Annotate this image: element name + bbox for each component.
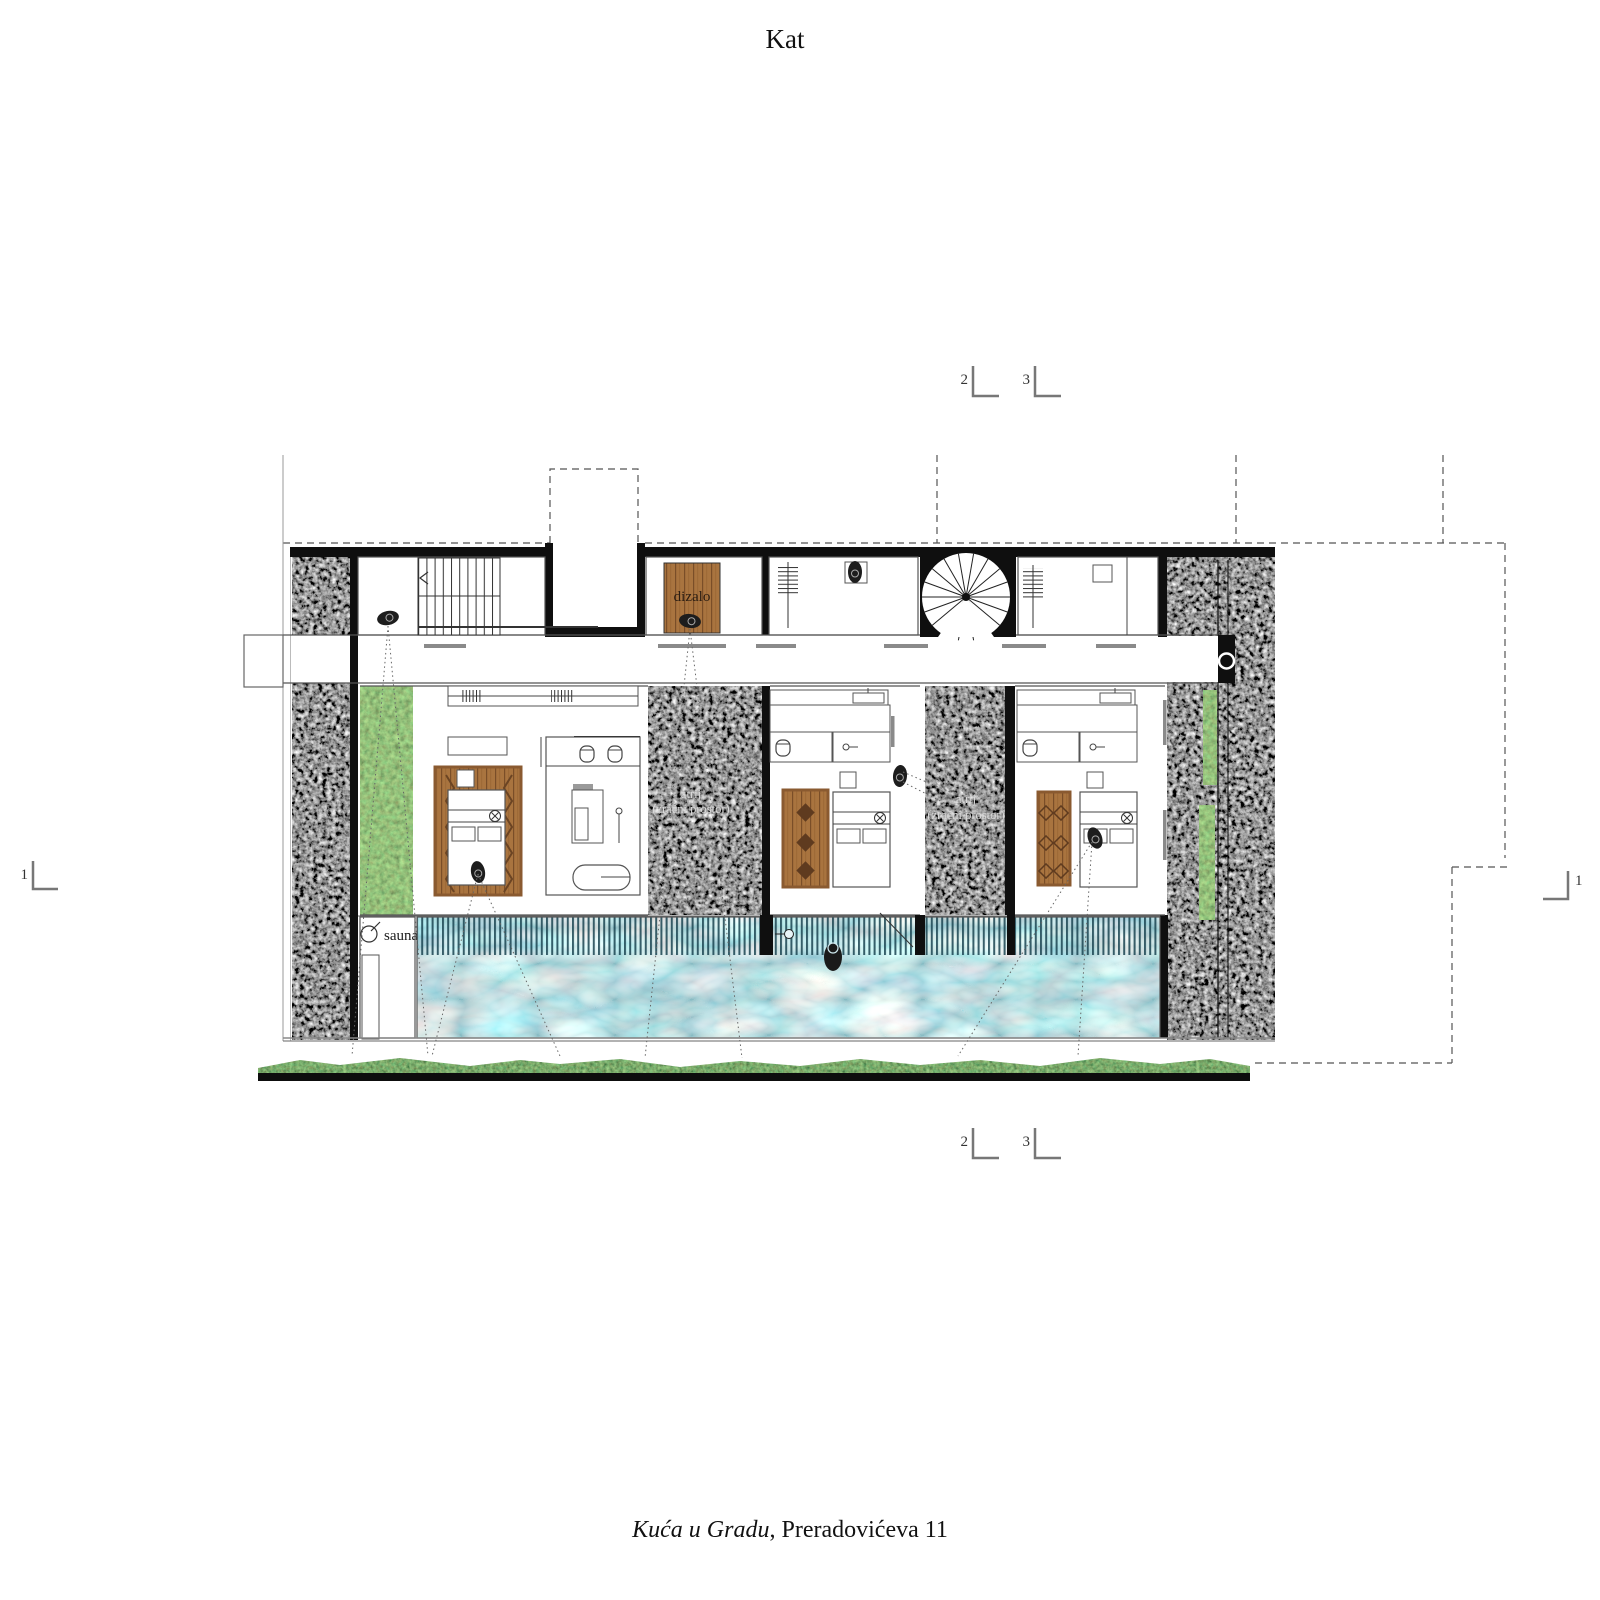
svg-text:3: 3	[1023, 1134, 1031, 1150]
nightstand-1	[457, 770, 474, 787]
person-utility	[848, 561, 862, 583]
bed-2	[833, 792, 890, 887]
spiral-stair	[920, 552, 1016, 641]
person-entry	[376, 609, 400, 627]
svg-text:1: 1	[21, 867, 29, 883]
corridor	[244, 635, 1218, 687]
planting-patch-1	[1203, 690, 1217, 785]
atrium-2-label-line1: atrij	[956, 792, 976, 806]
rug-3	[1038, 792, 1070, 885]
sauna-label: sauna	[384, 928, 418, 944]
door-markers	[424, 644, 1136, 648]
section-marker-2-top: 2	[961, 366, 1000, 396]
svg-text:2: 2	[961, 1134, 969, 1150]
street-hedge	[258, 1058, 1250, 1081]
radiator-1	[778, 562, 798, 628]
section-marker-3-bottom: 3	[1023, 1128, 1062, 1158]
door-2	[891, 716, 895, 747]
atrium-1-label-line2: (zračni prostor)	[652, 802, 729, 816]
section-marker-1-right: 1	[1543, 871, 1583, 899]
door-3a	[1163, 700, 1167, 745]
bathroom-1	[541, 736, 640, 895]
drawing-caption: Kuća u Gradu, Preradovićeva 11	[631, 1517, 948, 1543]
bench	[448, 737, 507, 755]
sauna-room: sauna	[360, 917, 418, 1039]
nightstand-2	[840, 772, 856, 788]
door-3b	[1163, 810, 1167, 860]
pool-ladder-fixture	[785, 930, 794, 939]
grass-strip	[360, 686, 413, 915]
section-marker-2-bottom: 2	[961, 1128, 1000, 1158]
drawing-title: Kat	[766, 24, 805, 54]
rug-2	[783, 790, 828, 887]
radiator-2	[1023, 565, 1043, 628]
atrium-1-void	[648, 686, 762, 915]
svg-text:1: 1	[1575, 873, 1583, 889]
nightstand-3	[1087, 772, 1103, 788]
elevator-label: dizalo	[674, 589, 711, 605]
caption-project-name: Kuća u Gradu	[631, 1517, 769, 1543]
svg-text:3: 3	[1023, 372, 1031, 388]
sauna-bench	[362, 955, 379, 1039]
svg-text:2: 2	[961, 372, 969, 388]
north-rooms: dizalo	[358, 552, 1158, 641]
caption-address: , Preradovićeva 11	[769, 1517, 947, 1543]
pool	[358, 913, 1160, 1038]
bedroom-3	[1015, 686, 1167, 915]
entry-landing	[244, 635, 283, 687]
bath-counter-3	[1017, 688, 1137, 762]
bedroom-2	[770, 686, 920, 915]
wardrobe-counter	[448, 686, 638, 706]
shelf	[573, 784, 593, 790]
fixture-box-2	[1093, 565, 1112, 582]
swimmer	[824, 943, 842, 971]
building-south-edge	[283, 1038, 1275, 1041]
section-marker-1-left: 1	[21, 861, 59, 889]
floor-plan-drawing: dizalo	[0, 0, 1600, 1600]
bath-counter-2	[770, 688, 890, 762]
person-2	[892, 764, 908, 787]
atrium-1-label-line1: atrij	[681, 787, 701, 801]
section-marker-3-top: 3	[1023, 366, 1062, 396]
void-shaft	[553, 543, 637, 627]
atrium-2-label-line2: (zračni prostor)	[927, 808, 1004, 822]
planting-patch-2	[1199, 805, 1215, 920]
west-wall	[350, 557, 358, 1040]
floor-plan-sheet: dizalo	[0, 0, 1600, 1600]
